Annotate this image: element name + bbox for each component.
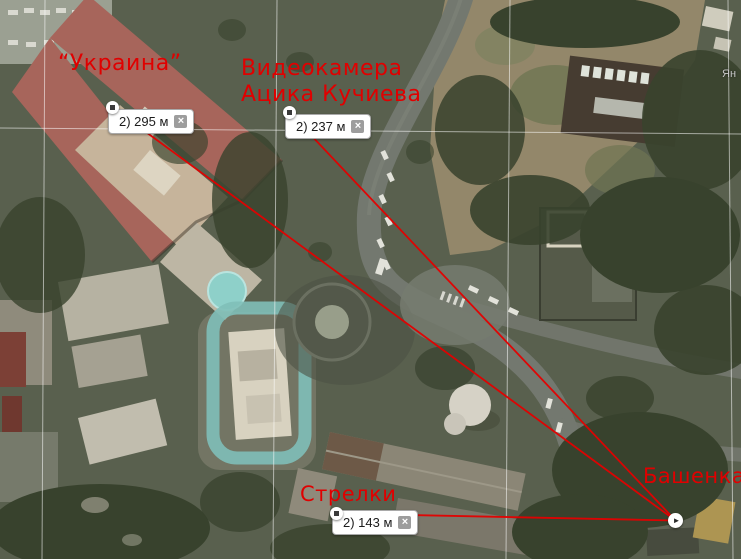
ruler-bubble-143[interactable]: 2) 143 м × <box>332 510 418 535</box>
ruler-measurement: 2) 143 м <box>343 515 392 530</box>
close-icon[interactable]: × <box>351 120 364 133</box>
ruler-point-icon[interactable] <box>283 106 296 119</box>
map-label-bashenka: Башенка <box>643 464 741 488</box>
map-label-ukraina: “Украина” <box>58 51 182 77</box>
play-icon: ► <box>673 517 681 525</box>
map-viewport[interactable]: “Украина” Видеокамера Ацика Кучиева Стре… <box>0 0 741 559</box>
map-watermark: Ян <box>722 68 736 80</box>
map-label-videocamera-line2: Ацика Кучиева <box>241 82 422 108</box>
close-icon[interactable]: × <box>398 516 411 529</box>
ruler-point-icon[interactable] <box>106 101 119 114</box>
ruler-point-core <box>287 110 292 115</box>
ruler-measurement: 2) 237 м <box>296 119 345 134</box>
ruler-point-icon[interactable] <box>330 507 343 520</box>
close-icon[interactable]: × <box>174 115 187 128</box>
ruler-measurement: 2) 295 м <box>119 114 168 129</box>
ruler-point-core <box>110 105 115 110</box>
map-label-strelki: Стрелки <box>300 482 396 506</box>
ruler-point-core <box>334 511 339 516</box>
map-label-videocamera-line1: Видеокамера <box>241 56 422 82</box>
ruler-bubble-237[interactable]: 2) 237 м × <box>285 114 371 139</box>
ruler-endpoint-marker[interactable]: ► <box>668 513 683 528</box>
map-label-videocamera: Видеокамера Ацика Кучиева <box>241 56 422 108</box>
ruler-bubble-295[interactable]: 2) 295 м × <box>108 109 194 134</box>
